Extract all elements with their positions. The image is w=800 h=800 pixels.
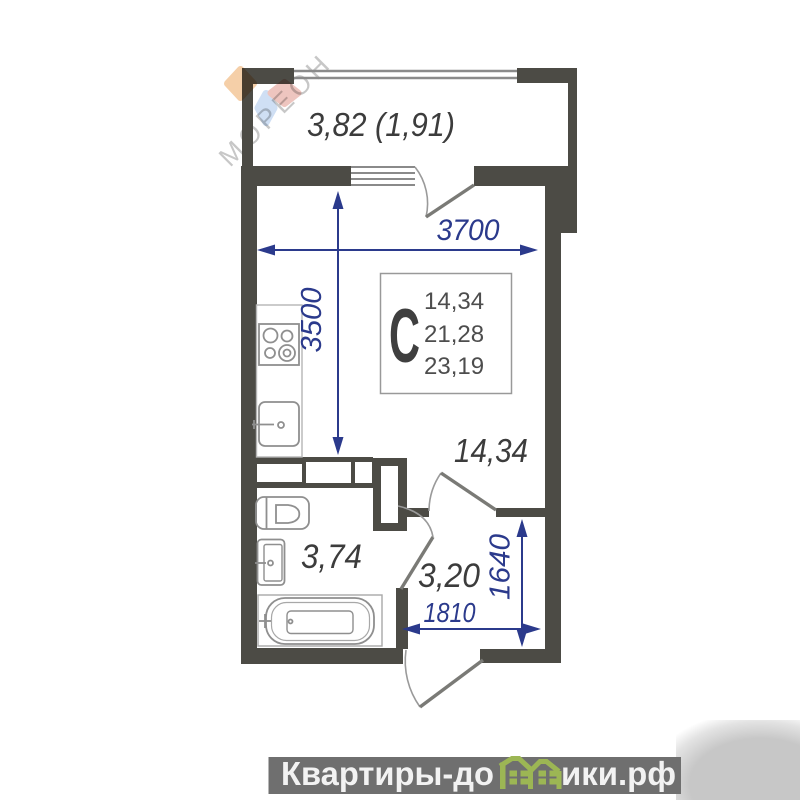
- svg-text:3700: 3700: [437, 214, 501, 247]
- svg-text:3,74: 3,74: [301, 538, 362, 576]
- svg-text:21,28: 21,28: [424, 321, 484, 348]
- svg-text:Квартиры-до: Квартиры-до: [281, 755, 494, 792]
- svg-text:3,20: 3,20: [418, 557, 480, 595]
- svg-text:С: С: [389, 294, 420, 379]
- svg-text:14,34: 14,34: [424, 288, 484, 315]
- svg-text:1810: 1810: [424, 597, 476, 628]
- svg-text:ики.рф: ики.рф: [561, 755, 676, 792]
- svg-text:23,19: 23,19: [424, 353, 484, 380]
- svg-text:14,34: 14,34: [454, 432, 528, 469]
- svg-text:3,82 (1,91): 3,82 (1,91): [307, 106, 455, 143]
- svg-text:1640: 1640: [485, 534, 517, 600]
- svg-text:3500: 3500: [296, 288, 328, 353]
